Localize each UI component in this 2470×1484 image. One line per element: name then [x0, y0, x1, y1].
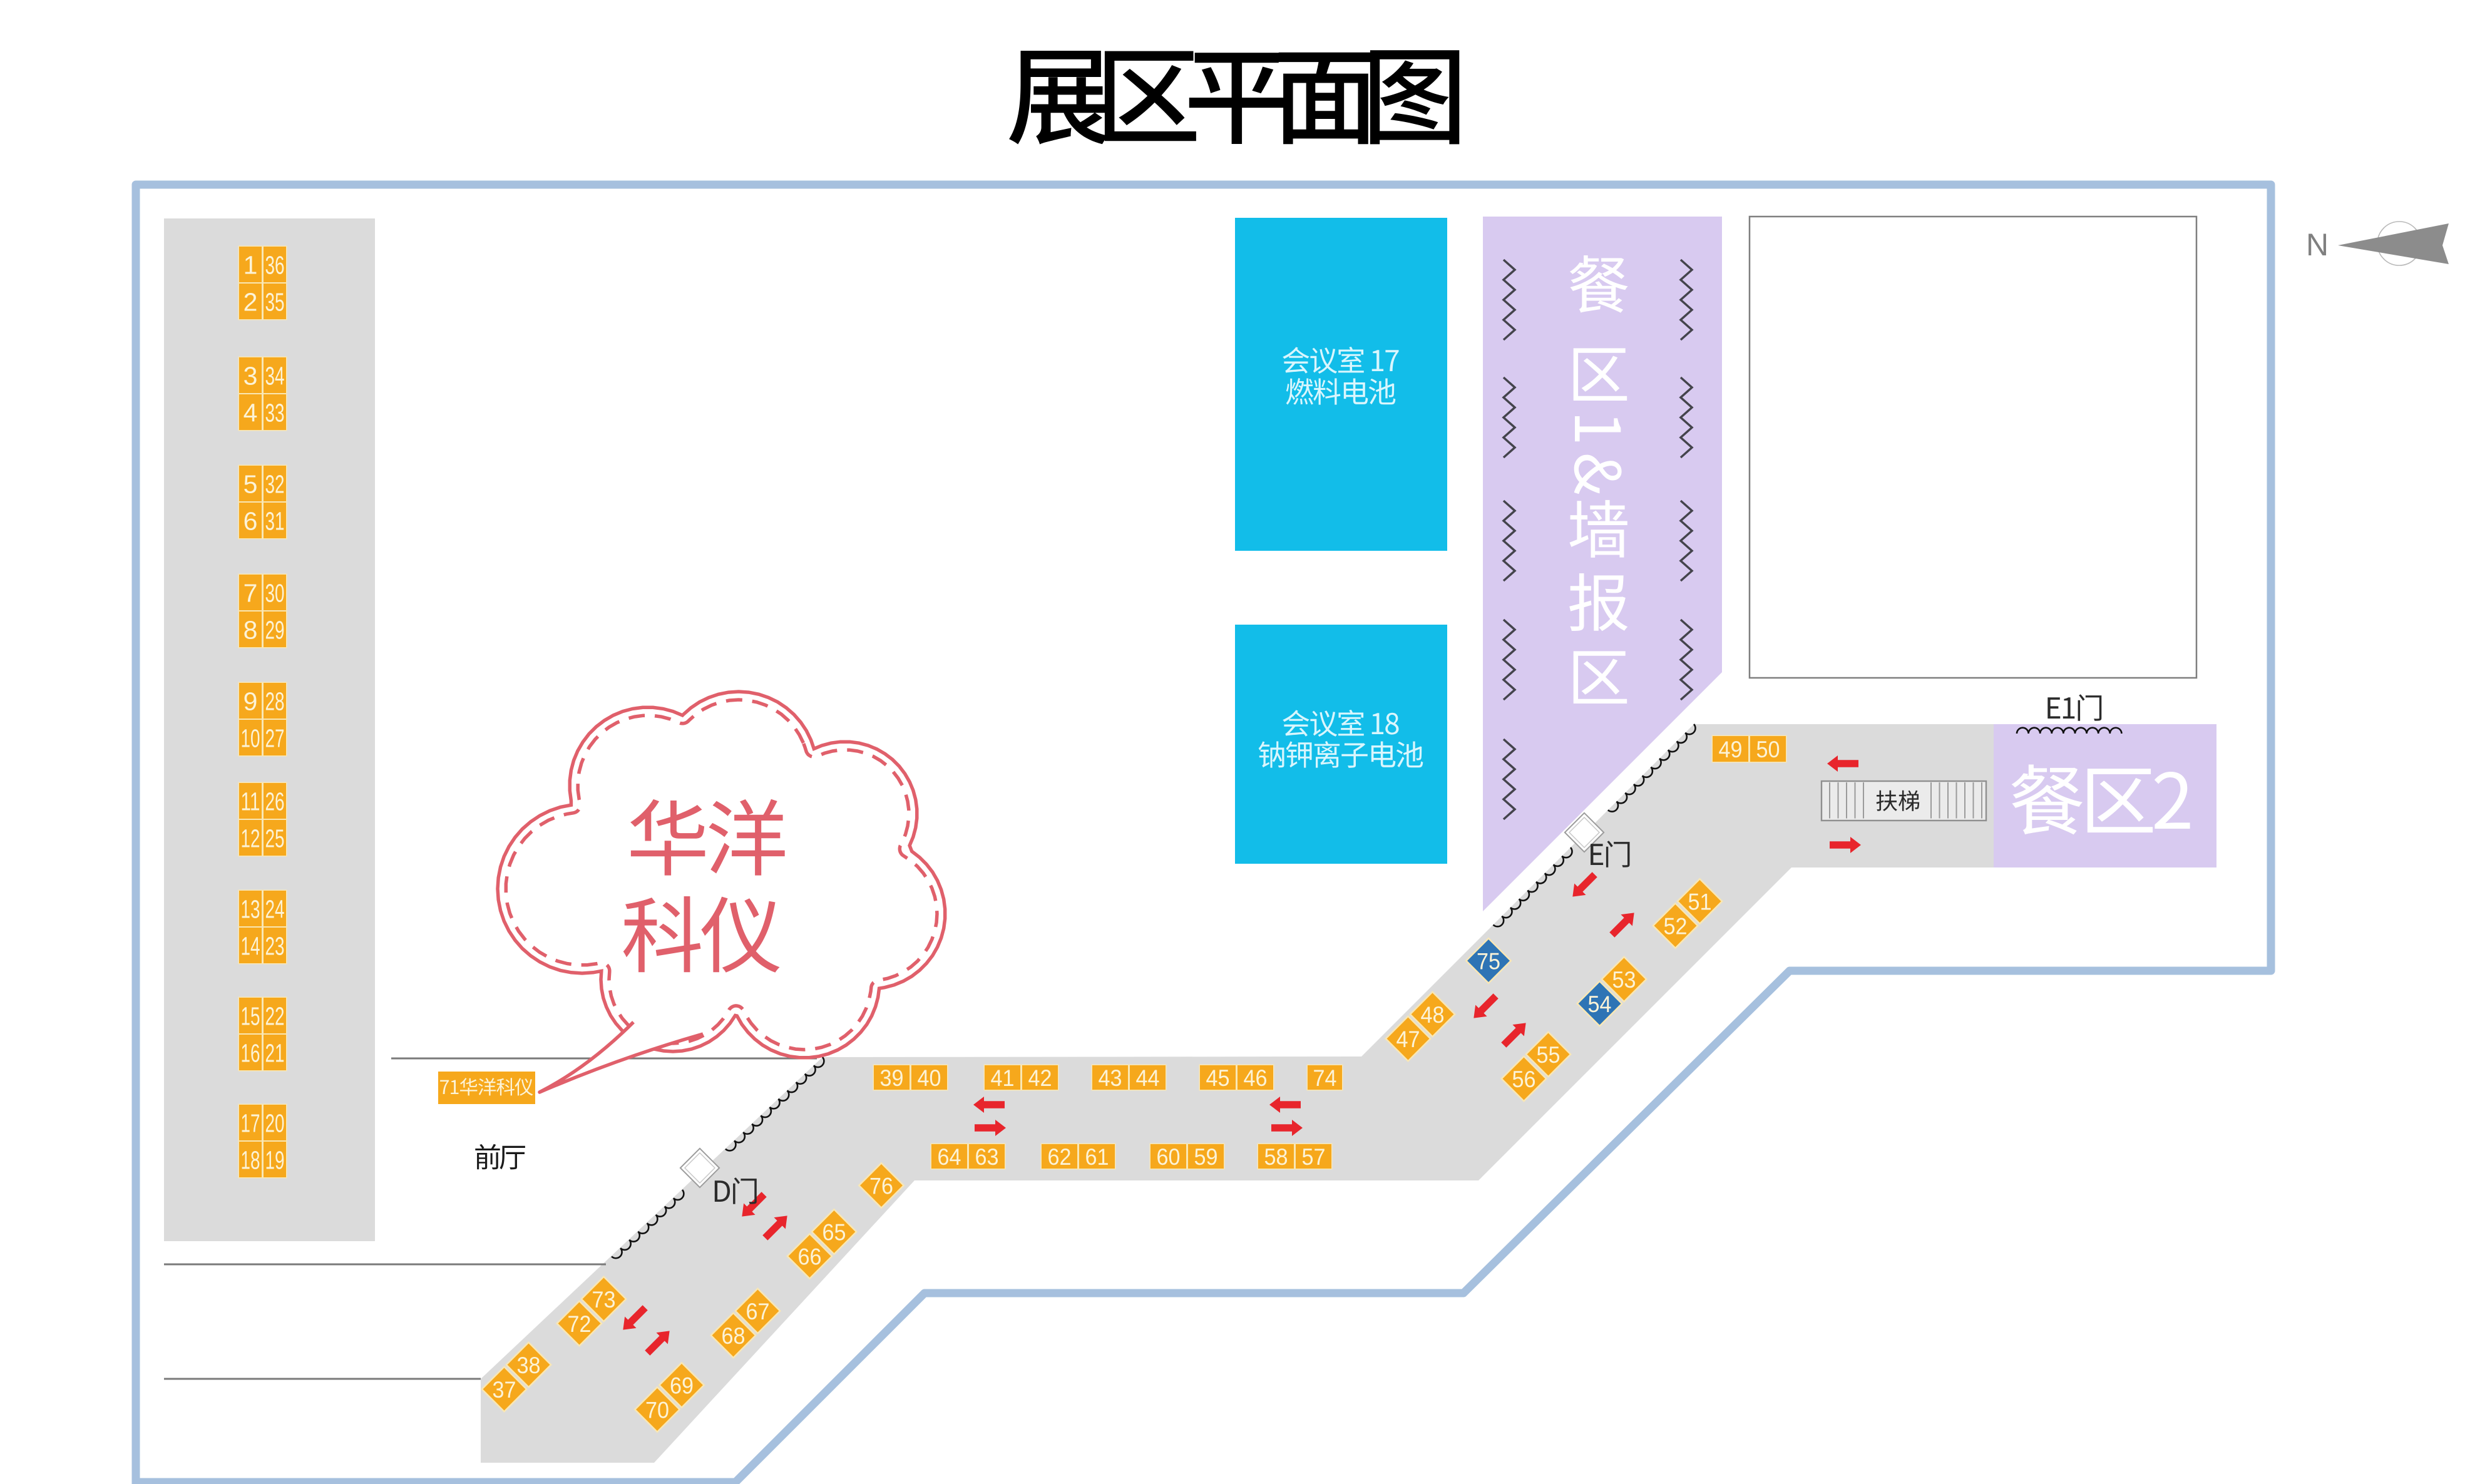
svg-text:73: 73: [592, 1287, 616, 1313]
svg-text:57: 57: [1302, 1144, 1326, 1170]
svg-text:56: 56: [1512, 1067, 1536, 1092]
svg-text:38: 38: [517, 1353, 541, 1378]
svg-text:66: 66: [798, 1244, 822, 1269]
svg-text:54: 54: [1588, 991, 1612, 1017]
svg-text:65: 65: [822, 1219, 846, 1245]
svg-text:62: 62: [1048, 1144, 1072, 1170]
svg-text:5: 5: [243, 469, 258, 498]
svg-text:23: 23: [265, 931, 285, 960]
svg-text:19: 19: [265, 1145, 285, 1174]
svg-text:25: 25: [265, 824, 285, 852]
svg-text:26: 26: [265, 787, 285, 816]
svg-text:12: 12: [241, 824, 260, 852]
svg-text:33: 33: [265, 398, 285, 427]
svg-text:76: 76: [869, 1173, 893, 1199]
svg-text:70: 70: [645, 1397, 669, 1423]
svg-text:31: 31: [265, 506, 285, 535]
svg-text:68: 68: [722, 1323, 746, 1349]
svg-text:4: 4: [243, 398, 258, 427]
svg-text:50: 50: [1756, 737, 1780, 762]
svg-text:60: 60: [1157, 1144, 1181, 1170]
svg-text:24: 24: [265, 894, 285, 923]
svg-text:63: 63: [975, 1144, 999, 1170]
svg-text:61: 61: [1085, 1144, 1109, 1170]
svg-text:14: 14: [241, 931, 260, 960]
svg-text:32: 32: [265, 469, 285, 498]
svg-text:44: 44: [1136, 1065, 1160, 1091]
svg-text:55: 55: [1537, 1042, 1560, 1068]
svg-text:10: 10: [241, 724, 260, 752]
svg-text:47: 47: [1396, 1026, 1420, 1052]
svg-text:72: 72: [568, 1311, 592, 1337]
svg-text:18: 18: [241, 1145, 260, 1174]
svg-text:29: 29: [265, 615, 285, 644]
svg-text:67: 67: [746, 1299, 770, 1324]
svg-text:13: 13: [241, 894, 260, 923]
svg-text:15: 15: [241, 1001, 260, 1030]
svg-text:59: 59: [1194, 1144, 1218, 1170]
svg-text:2: 2: [243, 287, 258, 316]
svg-text:3: 3: [243, 361, 258, 390]
svg-text:75: 75: [1477, 948, 1500, 974]
svg-text:69: 69: [670, 1373, 694, 1398]
svg-text:64: 64: [938, 1144, 961, 1170]
svg-text:52: 52: [1664, 913, 1688, 939]
svg-text:58: 58: [1264, 1144, 1288, 1170]
svg-text:34: 34: [265, 361, 285, 390]
svg-text:39: 39: [880, 1065, 904, 1091]
svg-text:45: 45: [1206, 1065, 1230, 1091]
svg-text:21: 21: [265, 1038, 285, 1067]
svg-text:40: 40: [918, 1065, 941, 1091]
svg-text:17: 17: [241, 1108, 260, 1137]
svg-text:9: 9: [243, 687, 258, 715]
svg-text:74: 74: [1313, 1065, 1337, 1091]
svg-text:11: 11: [241, 787, 260, 816]
svg-text:27: 27: [265, 724, 285, 752]
svg-text:30: 30: [265, 578, 285, 607]
svg-text:28: 28: [265, 687, 285, 715]
svg-text:7: 7: [243, 578, 258, 607]
svg-text:N: N: [2306, 227, 2329, 262]
svg-text:1: 1: [243, 250, 258, 279]
svg-text:43: 43: [1099, 1065, 1122, 1091]
svg-text:42: 42: [1028, 1065, 1052, 1091]
svg-text:37: 37: [493, 1377, 516, 1403]
svg-text:51: 51: [1688, 889, 1712, 914]
svg-text:48: 48: [1421, 1002, 1445, 1028]
svg-text:49: 49: [1719, 737, 1743, 762]
svg-text:16: 16: [241, 1038, 260, 1067]
svg-text:8: 8: [243, 615, 258, 644]
svg-text:46: 46: [1244, 1065, 1268, 1091]
svg-text:35: 35: [265, 287, 285, 316]
svg-text:22: 22: [265, 1001, 285, 1030]
svg-text:20: 20: [265, 1108, 285, 1137]
svg-text:36: 36: [265, 250, 285, 279]
svg-text:53: 53: [1612, 967, 1636, 993]
svg-text:41: 41: [991, 1065, 1015, 1091]
svg-text:6: 6: [243, 506, 258, 535]
